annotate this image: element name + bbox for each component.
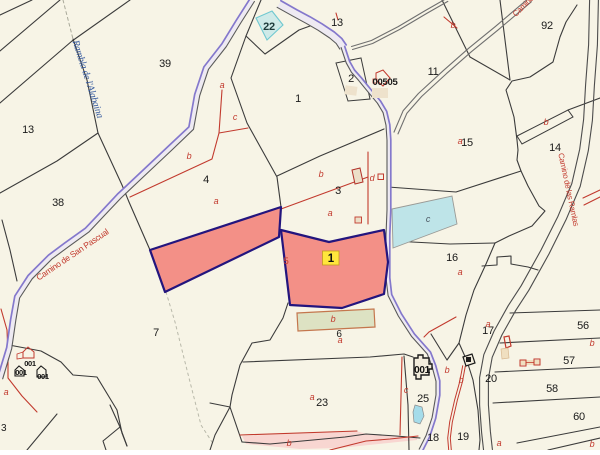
svg-text:3: 3 [335, 185, 341, 197]
svg-text:1: 1 [295, 93, 301, 105]
svg-text:39: 39 [159, 58, 171, 70]
svg-text:56: 56 [577, 320, 589, 332]
svg-text:a: a [497, 438, 502, 448]
svg-text:b: b [590, 338, 595, 348]
svg-text:5: 5 [284, 256, 289, 267]
svg-text:18: 18 [427, 432, 439, 444]
svg-text:a: a [310, 392, 315, 402]
svg-text:38: 38 [52, 197, 64, 209]
svg-text:a: a [220, 80, 225, 90]
svg-text:a: a [458, 136, 463, 146]
svg-text:b: b [544, 117, 549, 127]
svg-text:b: b [331, 314, 336, 324]
svg-text:57: 57 [563, 355, 575, 367]
svg-text:2: 2 [348, 73, 354, 85]
svg-text:001: 001 [37, 372, 49, 381]
svg-text:60: 60 [573, 411, 585, 423]
svg-text:b: b [459, 375, 464, 385]
svg-text:a: a [338, 335, 343, 345]
svg-text:13: 13 [331, 17, 343, 29]
svg-text:11: 11 [428, 66, 439, 78]
svg-text:19: 19 [457, 431, 469, 443]
svg-text:b: b [287, 438, 292, 448]
svg-text:a: a [328, 208, 333, 218]
svg-text:14: 14 [549, 142, 561, 154]
svg-text:b: b [590, 439, 595, 449]
svg-text:16: 16 [446, 252, 458, 264]
svg-text:001: 001 [24, 359, 36, 368]
svg-text:92: 92 [541, 20, 553, 32]
svg-text:b: b [445, 365, 450, 375]
svg-text:001: 001 [15, 368, 27, 377]
svg-text:00505: 00505 [373, 77, 399, 88]
svg-text:1: 1 [328, 253, 335, 265]
svg-text:b: b [319, 169, 324, 179]
svg-text:001: 001 [414, 365, 431, 376]
svg-text:4: 4 [203, 174, 209, 186]
svg-text:a: a [4, 387, 9, 397]
svg-text:b: b [187, 151, 192, 161]
svg-text:b: b [451, 20, 456, 30]
svg-text:a: a [458, 267, 463, 277]
svg-text:20: 20 [485, 373, 497, 385]
svg-text:58: 58 [546, 383, 558, 395]
svg-text:15: 15 [461, 137, 473, 149]
svg-text:13: 13 [22, 124, 34, 136]
svg-text:23: 23 [316, 397, 328, 409]
svg-text:7: 7 [153, 327, 159, 339]
svg-text:a: a [214, 196, 219, 206]
svg-text:3: 3 [1, 423, 7, 434]
svg-text:22: 22 [263, 21, 275, 33]
svg-text:a: a [486, 319, 491, 329]
svg-text:25: 25 [417, 393, 429, 405]
